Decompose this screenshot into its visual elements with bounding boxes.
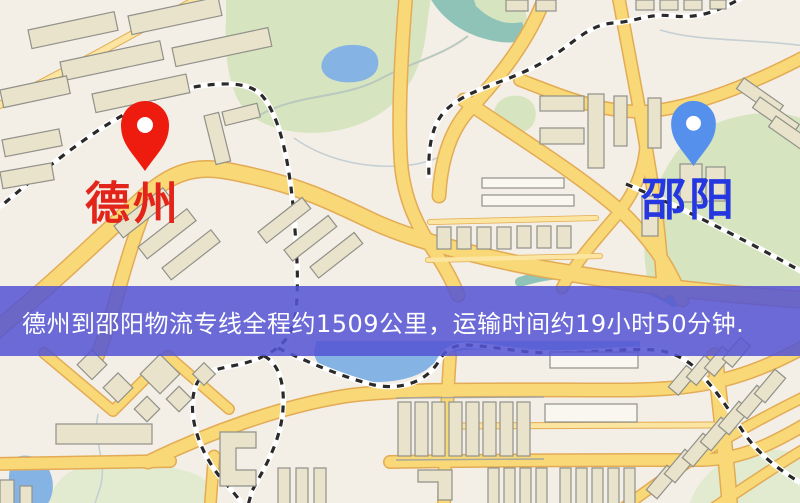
route-info-text: 德州到邵阳物流专线全程约1509公里，运输时间约19小时50分钟. <box>0 304 744 339</box>
basemap-canvas <box>0 0 800 503</box>
destination-pin-hole <box>686 116 701 131</box>
destination-label: 邵阳 <box>641 177 737 222</box>
route-info-banner: 德州到邵阳物流专线全程约1509公里，运输时间约19小时50分钟. <box>0 286 800 356</box>
destination-pin-shape <box>671 101 716 166</box>
origin-pin-shape <box>121 101 169 171</box>
map-image: 德州到邵阳物流专线全程约1509公里，运输时间约19小时50分钟. 德州 邵阳 <box>0 0 800 503</box>
destination-pin <box>670 100 717 168</box>
origin-pin-hole <box>137 117 153 133</box>
origin-label: 德州 <box>85 181 181 226</box>
origin-pin <box>120 100 170 173</box>
